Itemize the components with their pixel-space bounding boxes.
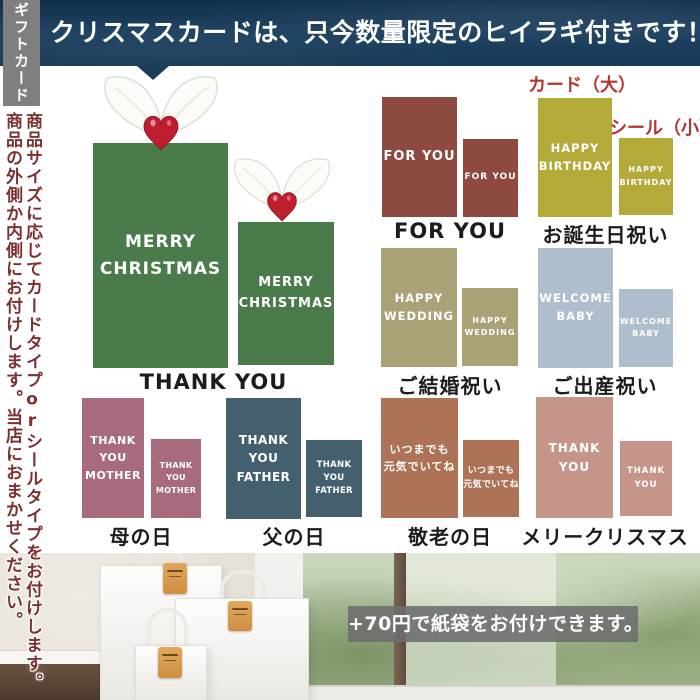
card-text: THANK YOU: [620, 465, 672, 491]
card-large-mother: THANK YOU MOTHER: [82, 398, 144, 518]
size-label-seal-small: シール（小）: [609, 114, 700, 140]
card-text: HAPPY: [395, 290, 444, 308]
section-label-father: 父の日: [229, 521, 359, 550]
section-label-keirou: 敬老の日: [375, 521, 525, 550]
card-text: FOR YOU: [464, 171, 516, 185]
banner-text: クリスマスカードは、只今数量限定のヒイラギ付きです！: [50, 0, 690, 66]
section-label-mother: 母の日: [76, 521, 206, 550]
product-info-image: クリスマスカードは、只今数量限定のヒイラギ付きです！ ギフトカード 商品サイズに…: [0, 0, 700, 700]
card-text: いつまでも: [468, 465, 515, 479]
card-small-keirou: いつまでも 元気でいてね: [463, 440, 519, 517]
top-banner: クリスマスカードは、只今数量限定のヒイラギ付きです！: [0, 0, 700, 66]
card-text: FATHER: [315, 485, 353, 498]
card-large-merry-christmas: THANK YOU: [536, 397, 613, 518]
card-large-keirou: いつまでも 元気でいてね: [381, 398, 458, 518]
card-text: MERRY: [125, 229, 196, 255]
card-text: THANK YOU: [226, 431, 301, 468]
card-text: HAPPY: [628, 164, 663, 176]
paper-bag-photo: +70円で紙袋をお付けできます。: [0, 553, 700, 700]
section-label-for-you: FOR YOU: [375, 219, 525, 243]
card-text: FATHER: [237, 468, 291, 487]
card-text: MERRY: [258, 273, 314, 293]
card-text: WEDDING: [465, 327, 516, 339]
paper-bag-price-note: +70円で紙袋をお付けできます。: [348, 606, 638, 642]
card-text: BABY: [632, 328, 660, 340]
gift-card-tab: ギフトカード: [3, 0, 40, 106]
card-small-wedding: HAPPY WEDDING: [462, 288, 518, 366]
card-text: WELCOME: [539, 290, 611, 308]
gift-card-tab-label: ギフトカード: [11, 2, 32, 104]
card-text: WELCOME: [620, 316, 672, 328]
card-text: THANK YOU: [536, 439, 613, 476]
card-large-baby: WELCOME BABY: [538, 248, 613, 368]
sidebar-note-line2: 商品の外側か内側にお付けします。当店におまかせください。: [1, 112, 22, 698]
holly-decoration-icon: [226, 148, 338, 228]
card-small-father: THANK YOU FATHER: [306, 440, 362, 517]
card-text: WEDDING: [384, 308, 454, 326]
card-text: BIRTHDAY: [620, 177, 673, 189]
card-text: いつまでも: [390, 441, 450, 458]
card-small-mother: THANK YOU MOTHER: [151, 439, 201, 518]
card-large-father: THANK YOU FATHER: [226, 398, 301, 519]
bag-tag: [158, 647, 182, 678]
card-text: CHRISTMAS: [239, 294, 334, 314]
card-text: HAPPY: [472, 315, 507, 327]
card-small-for-you: FOR YOU: [463, 139, 518, 217]
card-text: MOTHER: [156, 485, 196, 497]
card-small-merry-christmas: THANK YOU: [620, 441, 672, 516]
section-label-merry-christmas: メリークリスマス: [520, 521, 690, 550]
card-text: CHRISTMAS: [100, 256, 221, 282]
card-text: 元気でいてね: [463, 479, 519, 493]
card-text: THANK YOU: [151, 460, 201, 485]
card-large-christmas: MERRY CHRISTMAS: [93, 143, 228, 368]
card-text: BIRTHDAY: [539, 158, 612, 176]
bag-tag: [228, 601, 252, 631]
card-large-wedding: HAPPY WEDDING: [381, 248, 457, 367]
card-text: THANK YOU: [82, 432, 144, 466]
card-text: THANK YOU: [306, 459, 362, 485]
holly-decoration-icon: [95, 70, 227, 152]
card-small-christmas: MERRY CHRISTMAS: [238, 222, 334, 365]
size-label-card-large: カード（大）: [528, 71, 623, 97]
card-small-baby: WELCOME BABY: [619, 289, 673, 367]
card-large-for-you: FOR YOU: [382, 97, 457, 217]
section-label-baby: ご出産祝い: [530, 370, 680, 399]
section-label-thank-you: THANK YOU: [93, 370, 334, 394]
section-label-wedding: ご結婚祝い: [375, 370, 525, 399]
section-label-birthday: お誕生日祝い: [528, 219, 683, 248]
card-text: MOTHER: [85, 467, 141, 484]
sidebar-note-line1: 商品サイズに応じてカードタイプorシールタイプをお付けします。: [21, 112, 42, 698]
bag-tag: [163, 563, 187, 594]
card-text: BABY: [556, 308, 594, 326]
card-text: FOR YOU: [383, 147, 455, 167]
card-large-birthday: HAPPY BIRTHDAY: [538, 98, 612, 217]
card-text: HAPPY: [551, 140, 600, 158]
card-text: 元気でいてね: [384, 458, 456, 475]
card-small-birthday: HAPPY BIRTHDAY: [619, 138, 673, 215]
window-sill: [255, 685, 700, 700]
